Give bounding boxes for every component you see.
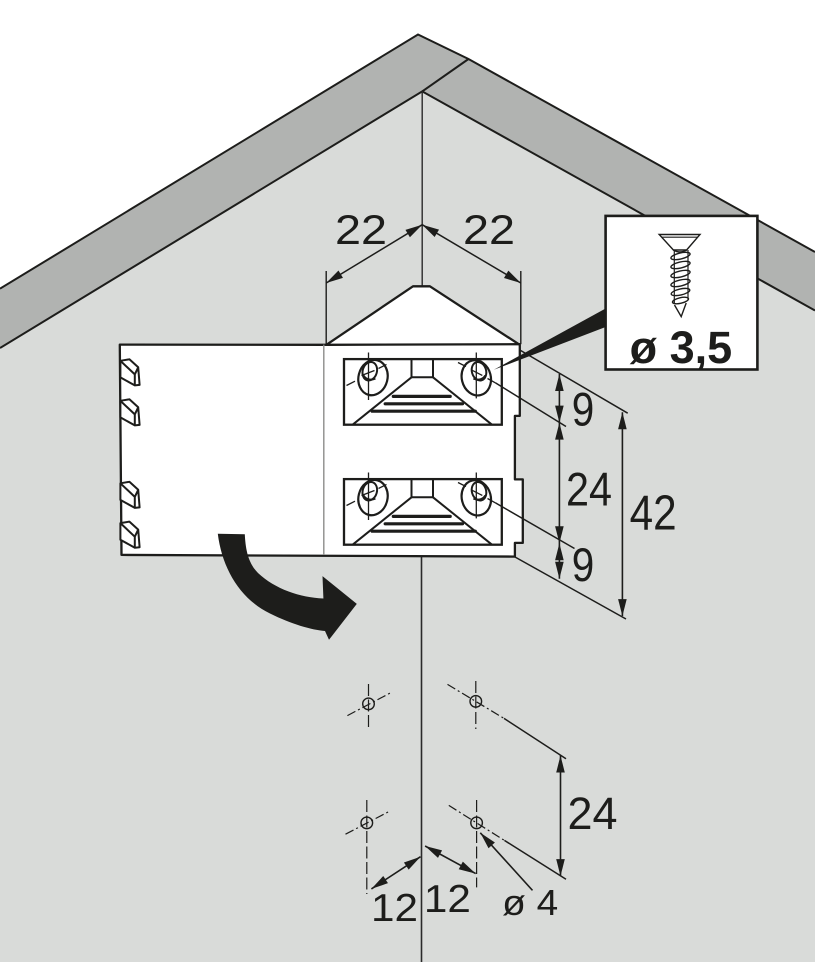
svg-text:9: 9 bbox=[572, 383, 595, 436]
svg-text:ø 3,5: ø 3,5 bbox=[630, 322, 733, 373]
svg-text:12: 12 bbox=[424, 878, 471, 921]
svg-text:24: 24 bbox=[568, 788, 618, 839]
svg-text:24: 24 bbox=[566, 463, 612, 516]
svg-text:22: 22 bbox=[463, 206, 515, 253]
svg-text:9: 9 bbox=[572, 538, 595, 591]
svg-text:22: 22 bbox=[335, 206, 387, 253]
svg-text:42: 42 bbox=[630, 486, 677, 540]
svg-text:12: 12 bbox=[371, 887, 418, 930]
svg-text:ø 4: ø 4 bbox=[502, 882, 558, 923]
